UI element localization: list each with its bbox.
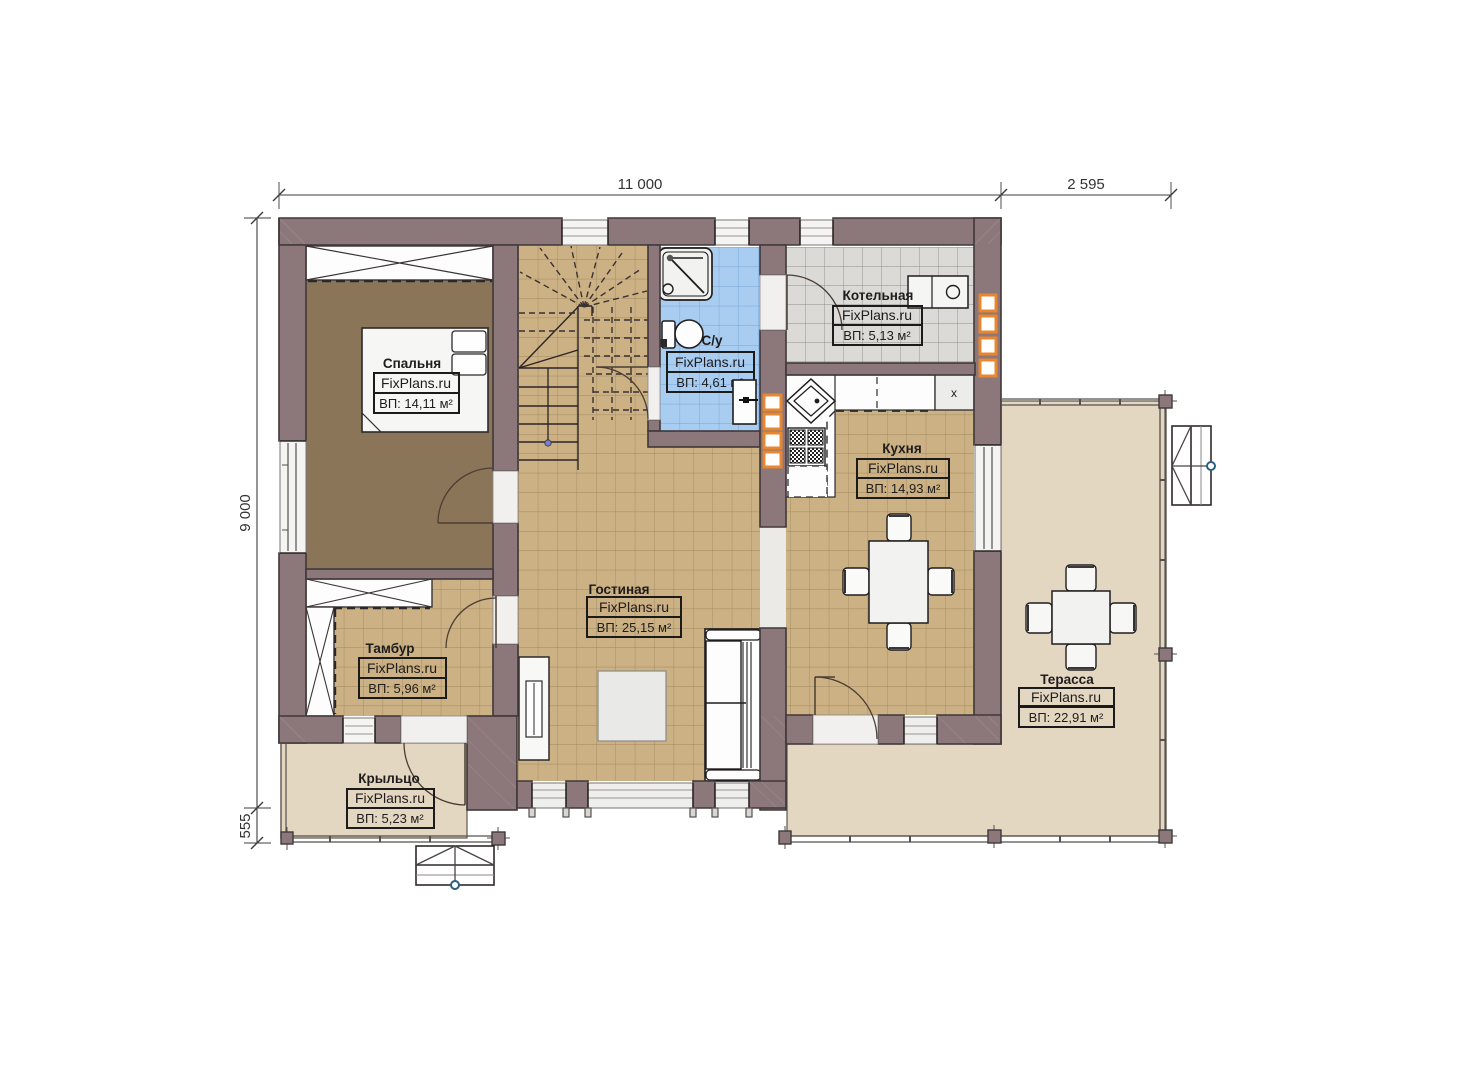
svg-text:Гостиная: Гостиная — [588, 582, 649, 597]
svg-text:Спальня: Спальня — [383, 356, 441, 371]
svg-text:Тамбур: Тамбур — [366, 641, 415, 656]
svg-text:ВП: 5,96 м²: ВП: 5,96 м² — [368, 681, 436, 696]
svg-text:FixPlans.ru: FixPlans.ru — [868, 460, 938, 476]
svg-text:x: x — [951, 386, 957, 400]
svg-text:2 595: 2 595 — [1067, 176, 1105, 193]
svg-text:ВП: 5,13 м²: ВП: 5,13 м² — [843, 328, 911, 343]
svg-text:11 000: 11 000 — [618, 176, 663, 193]
svg-text:555: 555 — [237, 813, 254, 838]
svg-text:Терасса: Терасса — [1040, 672, 1094, 687]
svg-text:FixPlans.ru: FixPlans.ru — [367, 660, 437, 676]
svg-text:ВП: 5,23 м²: ВП: 5,23 м² — [356, 811, 424, 826]
svg-text:ВП: 14,11 м²: ВП: 14,11 м² — [379, 396, 453, 411]
svg-text:Крыльцо: Крыльцо — [358, 771, 419, 786]
svg-text:Кухня: Кухня — [882, 441, 921, 456]
svg-text:ВП: 25,15 м²: ВП: 25,15 м² — [597, 620, 672, 635]
svg-text:FixPlans.ru: FixPlans.ru — [381, 375, 451, 391]
svg-text:9 000: 9 000 — [237, 494, 254, 532]
svg-text:С/у: С/у — [701, 333, 723, 348]
svg-text:FixPlans.ru: FixPlans.ru — [599, 599, 669, 615]
svg-text:ВП: 14,93 м²: ВП: 14,93 м² — [866, 481, 941, 496]
svg-text:Котельная: Котельная — [843, 288, 914, 303]
svg-text:FixPlans.ru: FixPlans.ru — [842, 307, 912, 323]
svg-text:ВП: 22,91 м²: ВП: 22,91 м² — [1029, 710, 1104, 725]
svg-text:FixPlans.ru: FixPlans.ru — [355, 790, 425, 806]
svg-text:FixPlans.ru: FixPlans.ru — [1031, 689, 1101, 705]
svg-text:FixPlans.ru: FixPlans.ru — [675, 354, 745, 370]
